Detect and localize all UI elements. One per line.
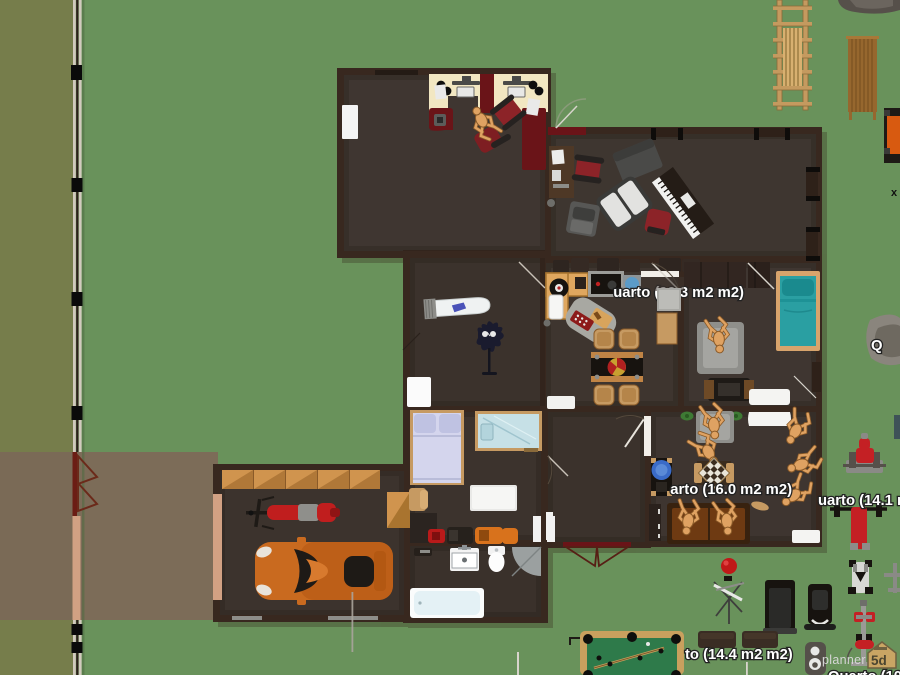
svg-text:5d: 5d [871,653,887,668]
svg-text:arto (16.0 m2 m2): arto (16.0 m2 m2) [670,482,792,498]
svg-text:Q: Q [871,338,883,354]
svg-text:to (14.4 m2 m2): to (14.4 m2 m2) [685,647,793,663]
svg-text:x: x [891,187,898,199]
svg-text:Quarto (10: Quarto (10 [828,669,900,675]
svg-text:uarto (14.1 m2: uarto (14.1 m2 [818,493,900,509]
svg-text:planner: planner [822,653,866,667]
